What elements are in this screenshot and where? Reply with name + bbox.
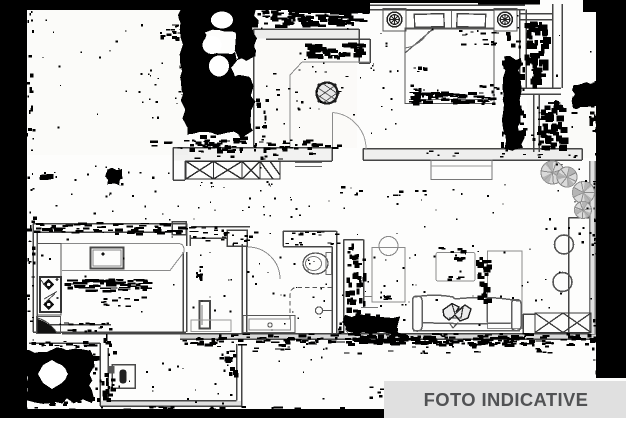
svg-text:FOTO INDICATIVE: FOTO INDICATIVE: [424, 389, 589, 410]
